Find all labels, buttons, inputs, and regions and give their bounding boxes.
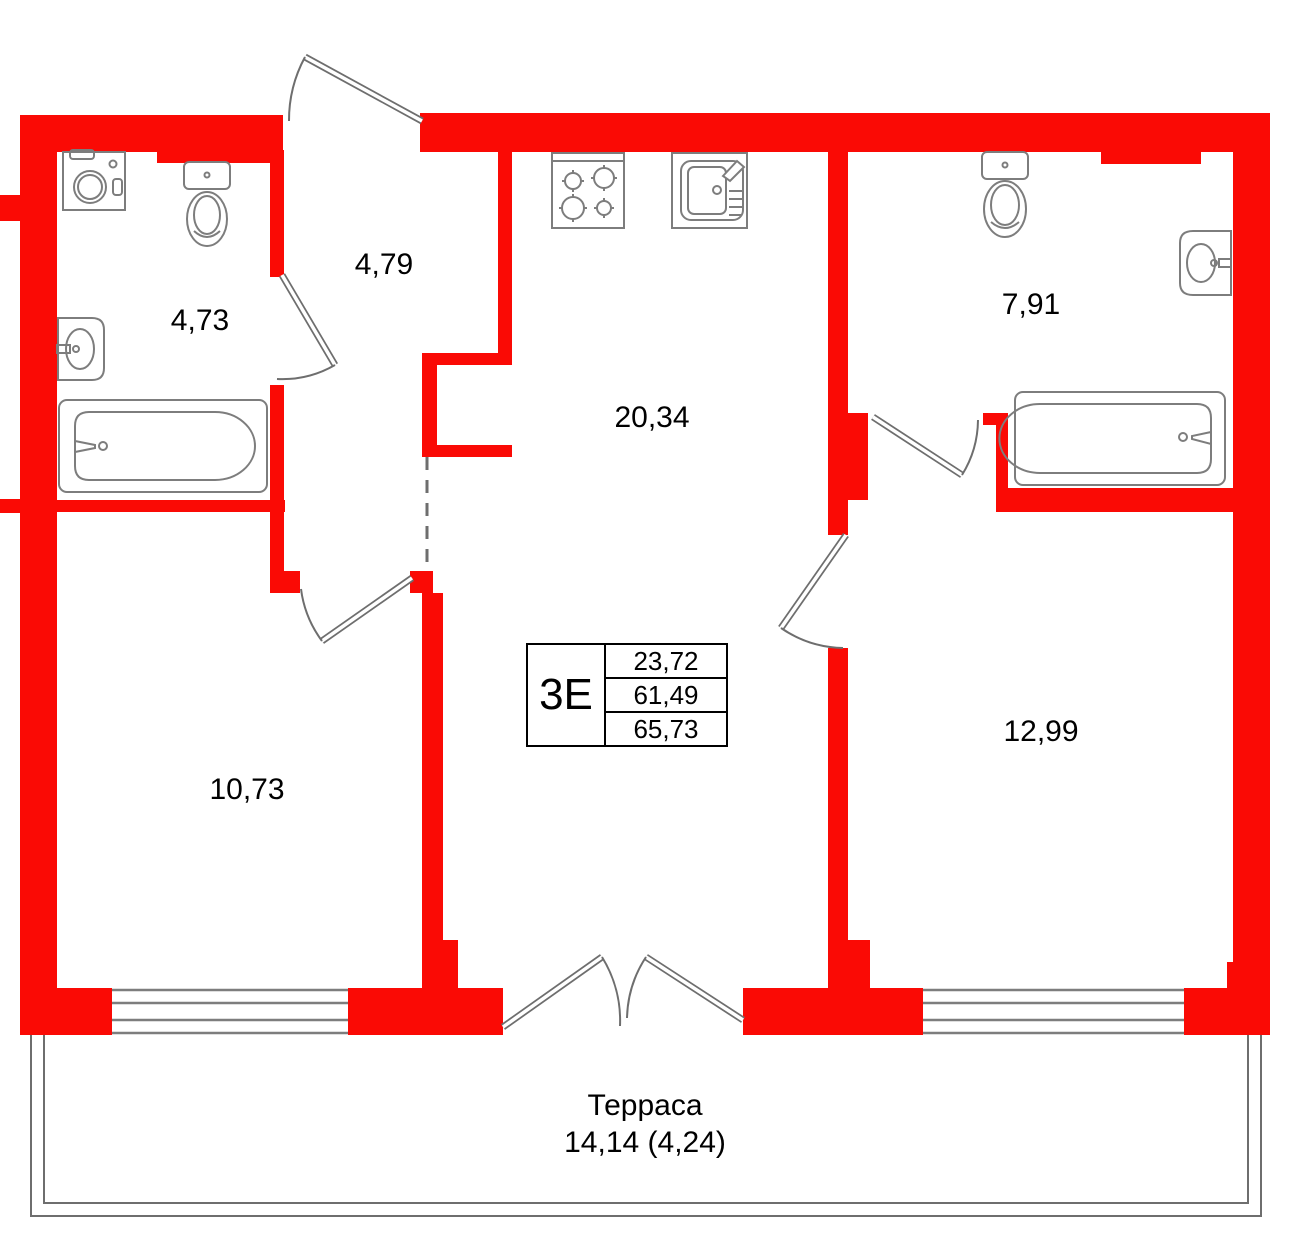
bedroom-1-door — [301, 578, 412, 641]
wall-segment — [410, 571, 433, 593]
wall-segment — [828, 152, 848, 535]
wall-segment — [1233, 150, 1270, 1035]
wall-segment — [270, 150, 284, 277]
bedroom-2-door — [781, 535, 846, 648]
bathroom-2-door — [873, 417, 978, 475]
room-area-label-bathroom-1: 4,73 — [171, 304, 229, 338]
toilet-icon — [184, 162, 230, 246]
wall-segment — [270, 571, 300, 593]
room-area-label-bathroom-2: 7,91 — [1002, 288, 1060, 322]
wall-segment — [20, 500, 285, 512]
wall-segment — [828, 648, 848, 988]
bathroom-1-door — [277, 275, 335, 379]
room-area-label-bedroom-2: 12,99 — [1003, 715, 1078, 749]
washing-machine-icon — [63, 150, 125, 210]
room-area-label-kitchen-living: 20,34 — [614, 401, 689, 435]
wall-segment — [848, 413, 868, 500]
unit-area-row-total: 65,73 — [606, 713, 726, 745]
bathtub-icon — [999, 392, 1225, 485]
wall-segment — [743, 988, 923, 1035]
wall-segment — [422, 445, 512, 457]
room-area-label-hallway: 4,79 — [355, 248, 413, 282]
sink-icon — [1180, 231, 1231, 295]
wall-segment — [0, 499, 20, 513]
wall-segment — [422, 593, 443, 988]
wall-segment — [1184, 988, 1270, 1035]
wall-segment — [20, 988, 112, 1035]
floor-plan: 4,73 4,79 20,34 7,91 10,73 12,99 Терраса… — [0, 0, 1291, 1240]
unit-type-label: 3Е — [528, 645, 606, 745]
wall-segment — [1101, 151, 1201, 164]
unit-area-row-living: 23,72 — [606, 645, 726, 679]
unit-area-rows: 23,72 61,49 65,73 — [606, 645, 726, 745]
wall-segment — [422, 353, 437, 457]
wall-segment — [996, 488, 1233, 512]
kitchen-sink-icon — [672, 153, 747, 228]
wall-segment — [433, 940, 458, 988]
unit-info-box: 3Е 23,72 61,49 65,73 — [526, 643, 728, 747]
terrace-door-left — [503, 957, 620, 1027]
terrace-name-label: Терраса — [587, 1089, 702, 1123]
wall-segment — [420, 113, 1270, 152]
window-left — [112, 990, 348, 1033]
entrance-door — [289, 57, 422, 121]
bathtub-icon — [59, 400, 267, 492]
wall-segment — [0, 195, 20, 221]
unit-area-row-apartment: 61,49 — [606, 679, 726, 713]
room-area-label-bedroom-1: 10,73 — [209, 773, 284, 807]
wall-segment — [270, 385, 284, 573]
sink-icon — [57, 318, 104, 380]
wall-segment — [1227, 962, 1270, 988]
stove-icon — [552, 153, 624, 228]
walls — [0, 113, 1270, 1035]
wall-segment — [20, 115, 57, 1035]
wall-segment — [348, 988, 503, 1035]
terrace-door-right — [627, 957, 743, 1020]
toilet-icon — [982, 152, 1028, 237]
terrace-area-label: 14,14 (4,24) — [564, 1126, 726, 1160]
floor-plan-drawing — [0, 0, 1291, 1240]
wall-segment — [848, 940, 870, 988]
wall-segment — [20, 115, 283, 152]
window-right — [923, 990, 1184, 1033]
wall-segment — [498, 152, 512, 365]
